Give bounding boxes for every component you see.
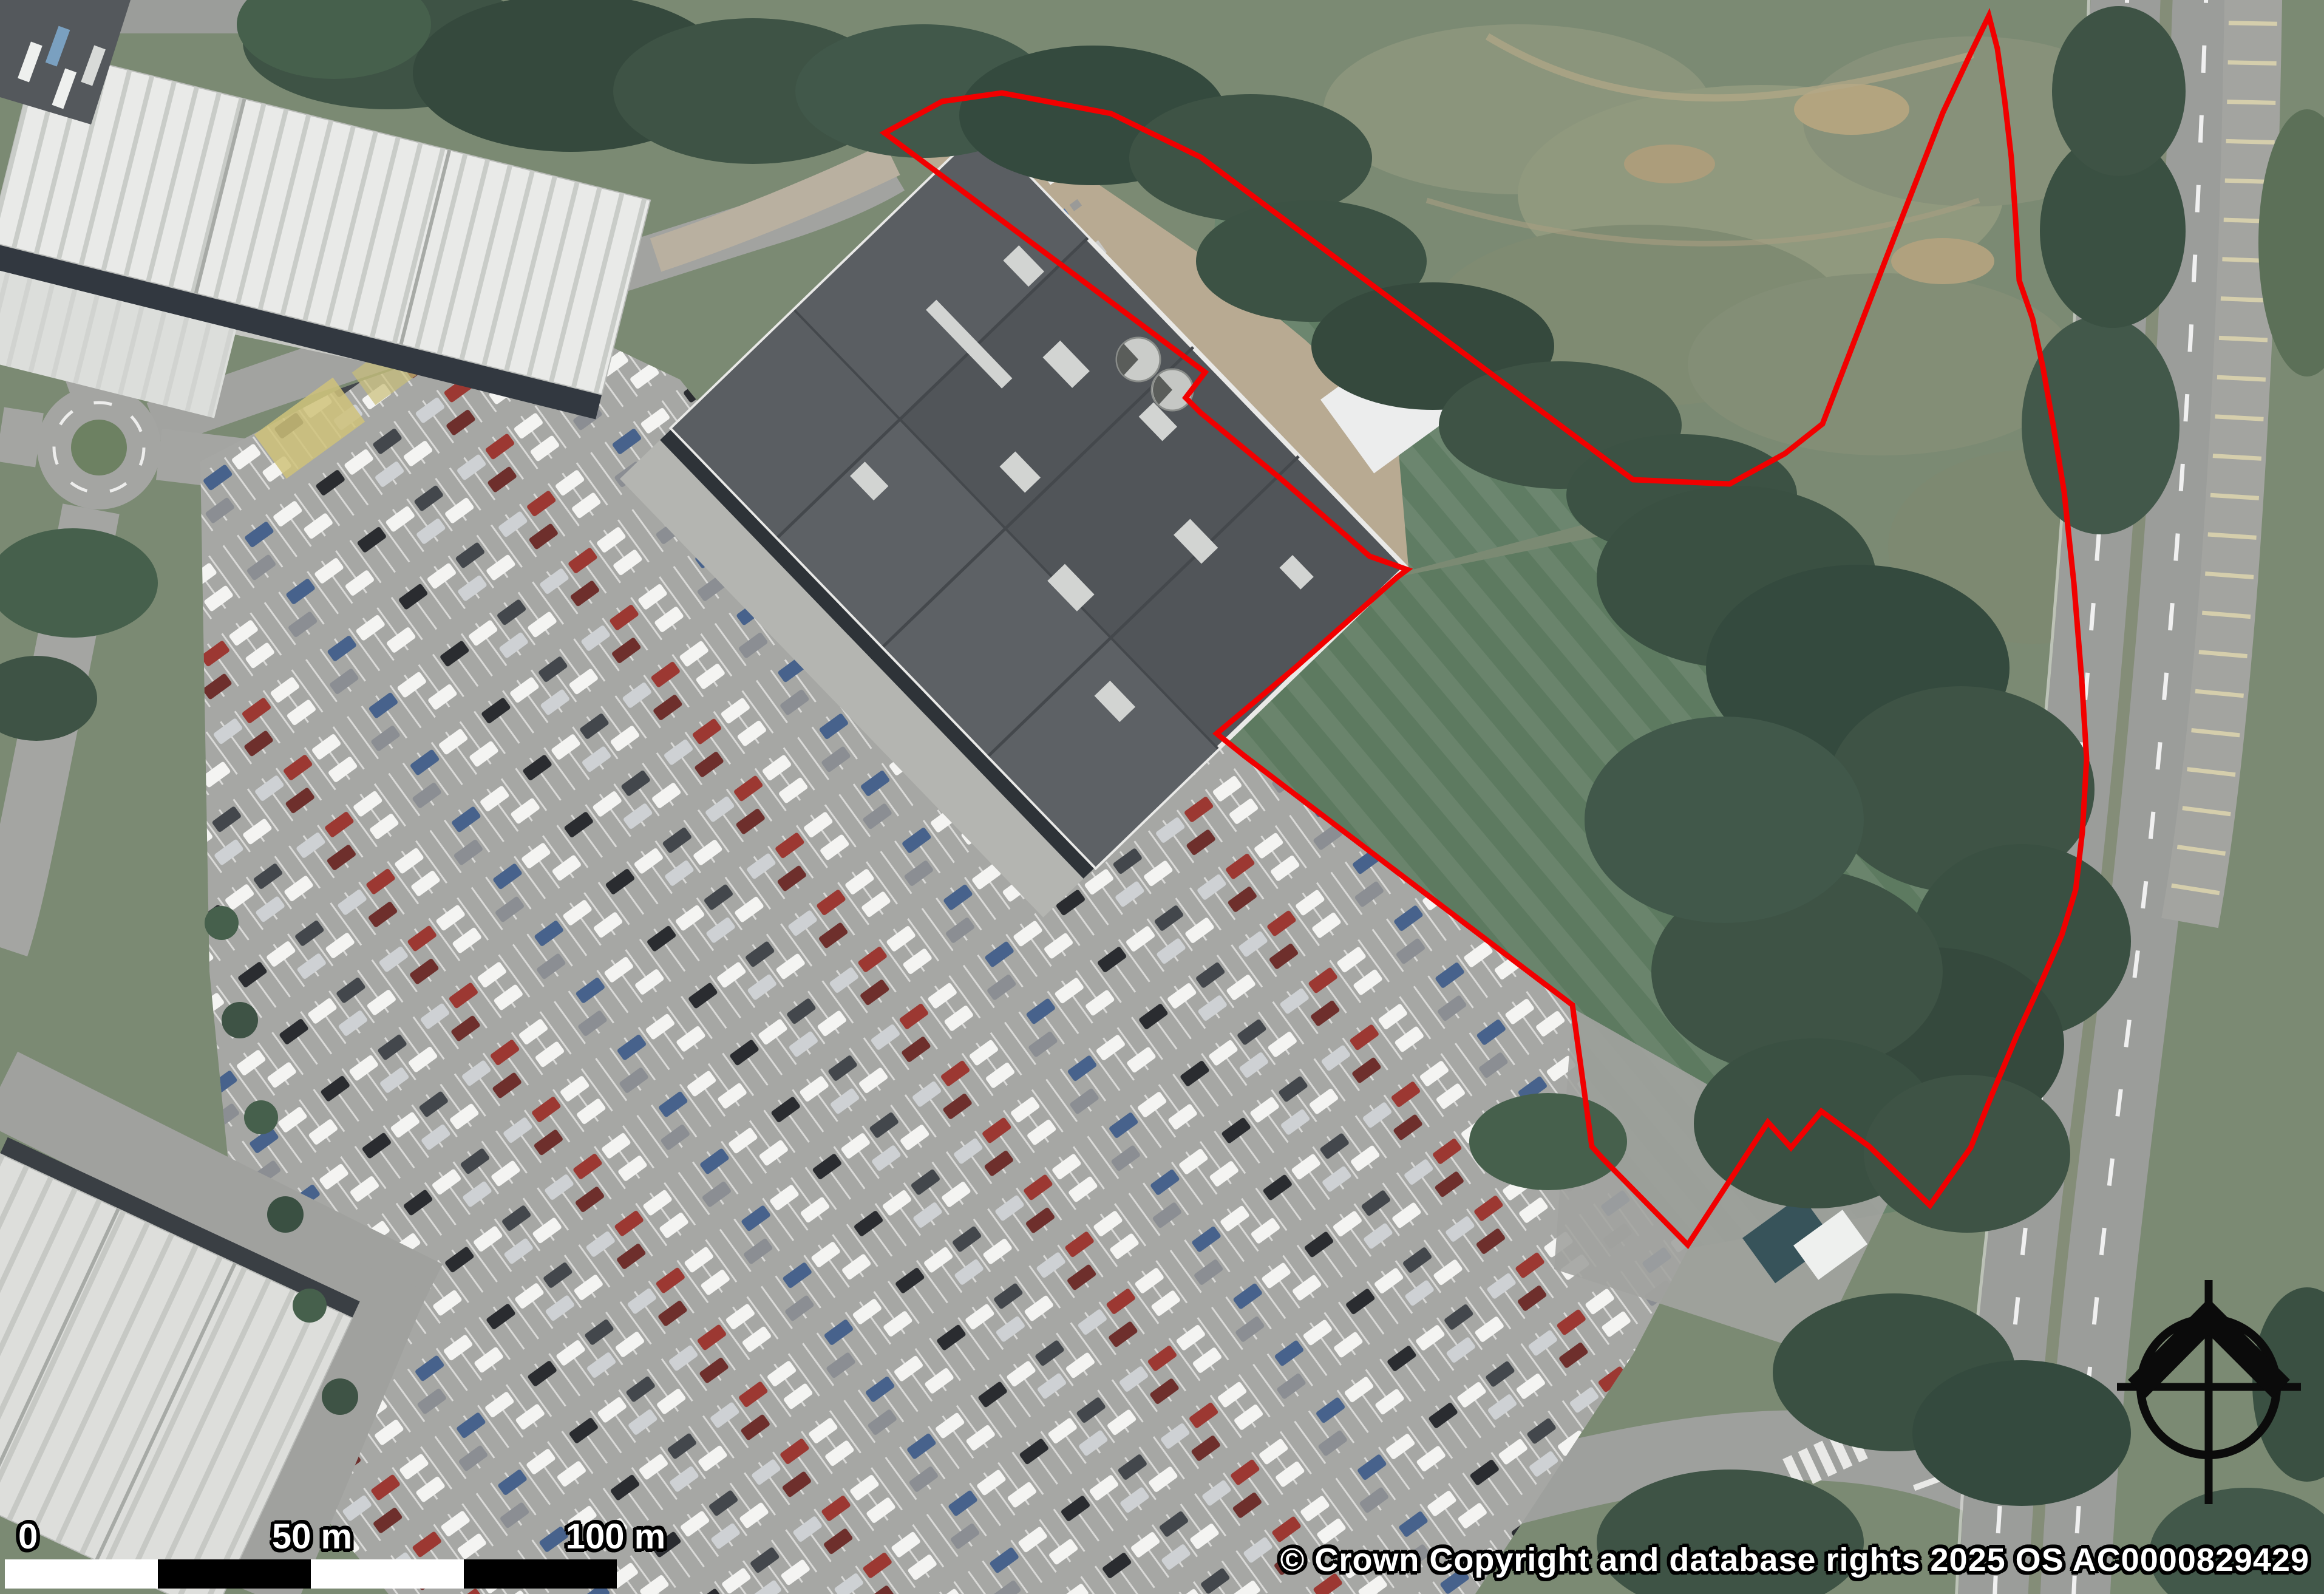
scale-bar-segment [5,1559,158,1589]
scale-bar [5,1559,617,1589]
map-canvas: 0 50 m 100 m © Crown Copyright and datab… [0,0,2324,1594]
scale-label-100m: 100 m [566,1519,665,1555]
scale-label-zero: 0 [18,1519,38,1555]
scale-bar-segment [464,1559,617,1589]
scale-bar-segment [311,1559,464,1589]
copyright-attribution: © Crown Copyright and database rights 20… [1280,1544,2309,1576]
aerial-imagery [0,0,2324,1594]
scale-label-50m: 50 m [272,1519,352,1555]
scale-bar-segment [158,1559,311,1589]
